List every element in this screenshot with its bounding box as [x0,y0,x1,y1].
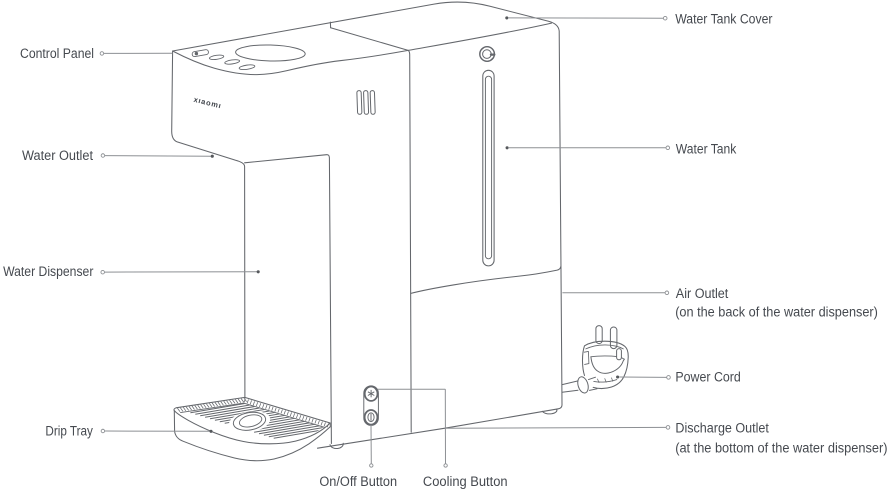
svg-text:Cooling Button: Cooling Button [423,474,508,489]
svg-text:Water Tank Cover: Water Tank Cover [675,12,773,27]
svg-text:(on the back of the water disp: (on the back of the water dispenser) [675,305,878,320]
svg-text:Air Outlet: Air Outlet [676,286,729,301]
svg-text:On/Off Button: On/Off Button [319,474,397,489]
svg-text:Discharge Outlet: Discharge Outlet [675,420,769,435]
svg-text:(at the bottom of the water di: (at the bottom of the water dispenser) [675,441,887,456]
svg-text:Drip Tray: Drip Tray [45,423,93,438]
svg-text:Power Cord: Power Cord [675,369,740,384]
svg-text:Water Tank: Water Tank [676,141,737,156]
svg-text:Control Panel: Control Panel [20,46,94,61]
svg-text:Water Dispenser: Water Dispenser [3,264,94,279]
svg-text:Water Outlet: Water Outlet [22,148,93,163]
